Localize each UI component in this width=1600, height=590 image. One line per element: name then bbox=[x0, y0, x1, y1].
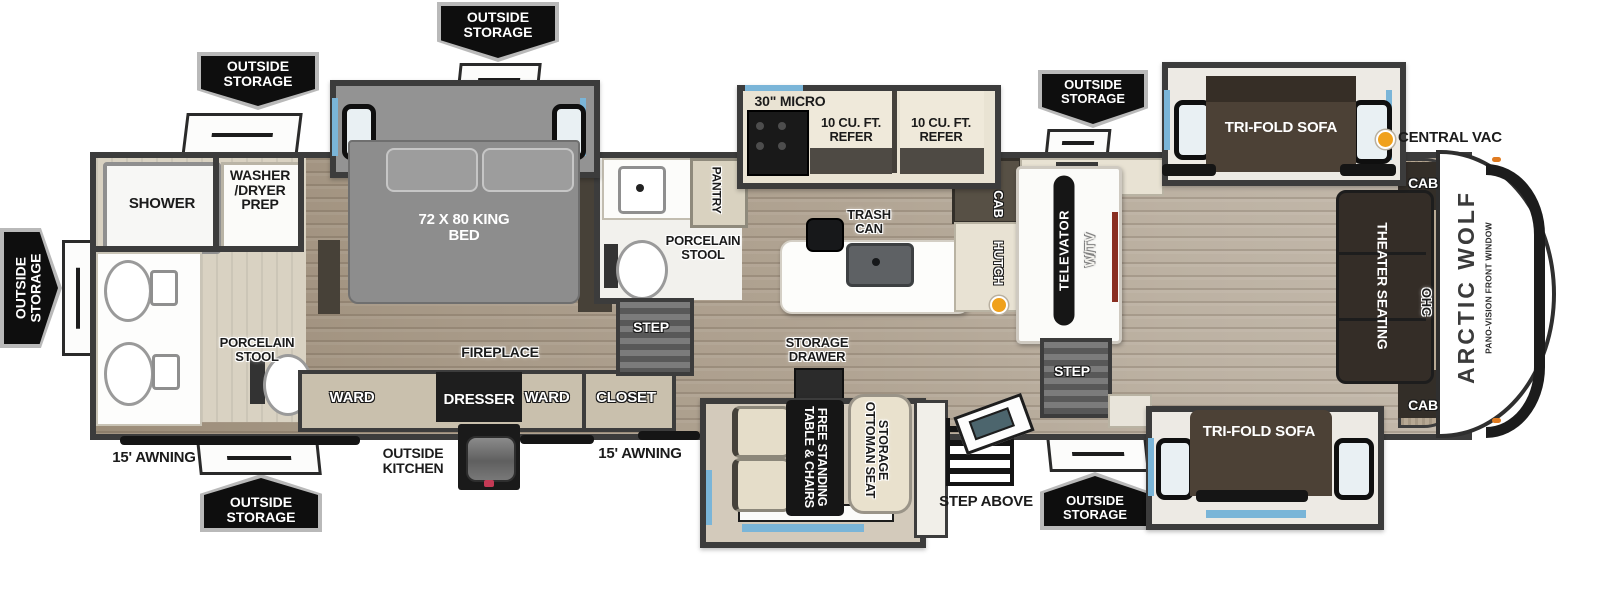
dresser-label: DRESSER bbox=[438, 392, 520, 408]
central-vac-label: CENTRAL VAC bbox=[1398, 130, 1518, 146]
shower-label: SHOWER bbox=[112, 196, 212, 212]
outside-storage-pennant-top-right: OUTSIDE STORAGE bbox=[1038, 70, 1148, 128]
awning-rail bbox=[120, 436, 360, 445]
awning-rail bbox=[638, 431, 700, 440]
outside-kitchen-knob bbox=[484, 480, 494, 487]
slide-skirt bbox=[1162, 164, 1216, 176]
micro-label: 30" MICRO bbox=[742, 94, 838, 109]
slide-accent bbox=[706, 470, 712, 525]
window bbox=[1334, 438, 1374, 500]
mid-bath-faucet-dot bbox=[636, 184, 644, 192]
flap-handle bbox=[212, 133, 273, 137]
flap-handle bbox=[1062, 141, 1094, 145]
cooktop-burner bbox=[756, 122, 764, 130]
pantry-label: PANTRY bbox=[710, 167, 723, 214]
closet-label: CLOSET bbox=[586, 390, 666, 406]
baggage-door-flap bbox=[62, 240, 93, 356]
outside-storage-pennant-label: OUTSIDE STORAGE bbox=[1042, 74, 1144, 124]
porcelain-stool-mid-label: PORCELAIN STOOL bbox=[656, 234, 750, 261]
porcelain-stool-rear-label: PORCELAIN STOOL bbox=[206, 336, 308, 363]
baggage-door-flap bbox=[1046, 436, 1150, 472]
step-mid-label: STEP bbox=[620, 320, 682, 335]
televator-fireplace-strip bbox=[1112, 212, 1118, 302]
bath-faucet bbox=[152, 354, 180, 390]
ohc-label: OHC bbox=[1419, 288, 1433, 316]
cooktop-burner bbox=[756, 142, 764, 150]
outside-storage-pennant-label: OUTSIDE STORAGE bbox=[201, 56, 315, 106]
window bbox=[1156, 438, 1194, 500]
king-bed-label: 72 X 80 KING BED bbox=[418, 212, 510, 244]
outside-storage-pennant-label: OUTSIDE STORAGE bbox=[204, 478, 318, 528]
dinette-table-label: FREE STANDING TABLE & CHAIRS bbox=[802, 398, 828, 516]
slide-skirt bbox=[1340, 164, 1396, 176]
flap-handle bbox=[76, 268, 80, 329]
bath-faucet bbox=[150, 270, 178, 306]
slide-accent bbox=[1164, 90, 1170, 150]
ottoman-label-text: STORAGE OTTOMAN SEAT bbox=[863, 402, 890, 498]
awning-right-label: 15' AWNING bbox=[590, 446, 690, 462]
bedroom-step bbox=[616, 298, 694, 376]
central-vac-dot bbox=[1376, 130, 1395, 149]
arctic-wolf-brand: ARCTIC WOLF bbox=[1454, 190, 1478, 384]
outside-storage-pennant-bottom-left: OUTSIDE STORAGE bbox=[200, 474, 322, 532]
televator-pill: TELEVATOR bbox=[1054, 176, 1075, 326]
bath-sink bbox=[104, 342, 154, 406]
step-right-label: STEP bbox=[1042, 364, 1102, 379]
outside-storage-pennant-top-left: OUTSIDE STORAGE bbox=[197, 52, 319, 110]
outside-storage-pennant-left-side: OUTSIDE STORAGE bbox=[0, 228, 62, 348]
storage-drawer-box bbox=[794, 368, 844, 402]
sofa-back-cushion bbox=[1206, 76, 1356, 102]
cooktop-burner bbox=[778, 122, 786, 130]
fireplace-label: FIREPLACE bbox=[450, 345, 550, 360]
cab-front-top-label: CAB bbox=[1398, 176, 1448, 191]
awning-rail bbox=[520, 435, 594, 444]
dinette-table-label-text: FREE STANDING TABLE & CHAIRS bbox=[802, 406, 829, 508]
slide-accent bbox=[1206, 510, 1306, 518]
cab-kitchen-label: CAB bbox=[991, 190, 1005, 218]
outside-storage-pennant-label: OUTSIDE STORAGE bbox=[1044, 476, 1146, 526]
bed-pillow bbox=[482, 148, 574, 192]
island-faucet-dot bbox=[872, 258, 880, 266]
awning-left-label: 15' AWNING bbox=[104, 450, 204, 466]
dinette-chair bbox=[732, 406, 791, 458]
hutch-label: HUTCH bbox=[991, 241, 1005, 286]
central-vac-port-dot bbox=[990, 296, 1008, 314]
trash-can-label: TRASH CAN bbox=[838, 208, 900, 235]
dinette-exterior-panel bbox=[914, 400, 948, 538]
bed-pillow bbox=[386, 148, 478, 192]
flap-handle bbox=[1072, 452, 1124, 456]
marker-light bbox=[1492, 157, 1501, 162]
bath-sink bbox=[104, 260, 152, 322]
theater-seating-label: THEATER SEATING bbox=[1375, 222, 1390, 349]
tri-fold-sofa-bottom-label: TRI-FOLD SOFA bbox=[1202, 424, 1316, 440]
refer-label: 10 CU. FT. REFER bbox=[812, 116, 890, 143]
wall bbox=[594, 158, 600, 304]
cooktop-burner bbox=[778, 142, 786, 150]
outside-storage-pennant-top-center: OUTSIDE STORAGE bbox=[437, 2, 559, 62]
flap-handle bbox=[227, 456, 291, 460]
marker-light bbox=[1492, 418, 1501, 423]
wall bbox=[298, 158, 304, 252]
ottoman-label: STORAGE OTTOMAN SEAT bbox=[863, 398, 889, 502]
floorplan-canvas: OUTSIDE STORAGE OUTSIDE STORAGE OUTSIDE … bbox=[0, 0, 1600, 590]
outside-storage-pennant-label: OUTSIDE STORAGE bbox=[441, 6, 555, 58]
ward-label: WARD bbox=[510, 390, 584, 406]
slide-accent bbox=[745, 85, 803, 91]
dinette-chair bbox=[732, 458, 791, 512]
storage-drawer-label: STORAGE DRAWER bbox=[780, 336, 854, 363]
tri-fold-sofa-top-label: TRI-FOLD SOFA bbox=[1224, 120, 1338, 136]
hutch-counter bbox=[954, 222, 1020, 312]
slide-accent bbox=[742, 524, 864, 532]
pano-front-window-band bbox=[1486, 164, 1545, 438]
outside-kitchen-grill bbox=[466, 436, 516, 482]
televator-wtv-label: W/TV bbox=[1083, 233, 1098, 267]
step-above-label: STEP ABOVE bbox=[926, 494, 1046, 510]
refer-label: 10 CU. FT. REFER bbox=[902, 116, 980, 143]
outside-storage-pennant-label: OUTSIDE STORAGE bbox=[4, 232, 58, 344]
cab-front-bottom-label: CAB bbox=[1398, 398, 1448, 413]
slide-skirt bbox=[1196, 490, 1308, 502]
refrigerator-door-open bbox=[810, 148, 892, 174]
ward-label: WARD bbox=[312, 390, 392, 406]
slide-accent bbox=[1148, 438, 1154, 496]
outside-kitchen-label: OUTSIDE KITCHEN bbox=[370, 446, 456, 475]
pano-window-label: PANO-VISION FRONT WINDOW bbox=[1485, 222, 1494, 354]
island-sink bbox=[846, 243, 914, 287]
baggage-door-flap bbox=[196, 440, 322, 475]
entry-stairs-tread bbox=[969, 407, 1015, 440]
outside-storage-pennant-label-text: OUTSIDE STORAGE bbox=[13, 236, 44, 340]
outside-storage-pennant-bottom-right: OUTSIDE STORAGE bbox=[1040, 472, 1150, 530]
washer-dryer-label: WASHER /DRYER PREP bbox=[222, 168, 298, 212]
wall bbox=[213, 158, 219, 250]
refrigerator-door-open bbox=[900, 148, 984, 174]
bedroom-nightstand bbox=[318, 240, 340, 314]
baggage-door-flap bbox=[181, 113, 302, 157]
televator-label: TELEVATOR bbox=[1057, 210, 1071, 291]
slide-accent bbox=[332, 98, 338, 156]
